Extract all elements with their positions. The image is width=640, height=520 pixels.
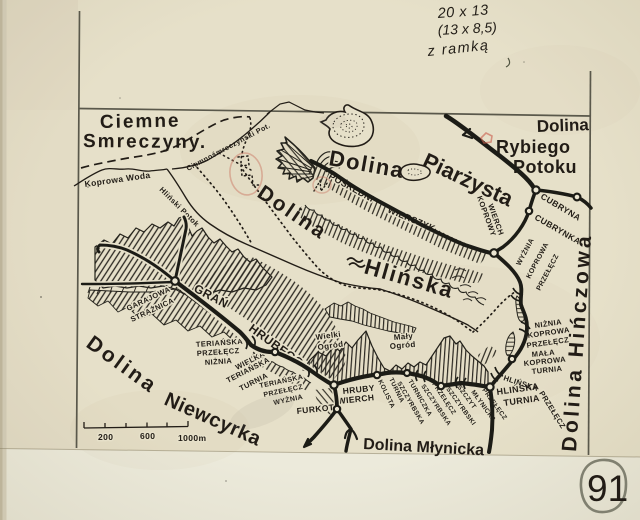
svg-text:Ciemne: Ciemne (100, 111, 181, 133)
svg-text:Dolina: Dolina (536, 115, 589, 136)
svg-text:600: 600 (140, 431, 155, 441)
svg-text:Smreczyny.: Smreczyny. (83, 131, 207, 153)
svg-text:NIŻNIA: NIŻNIA (205, 356, 233, 367)
svg-text:Rybiego: Rybiego (496, 137, 571, 157)
svg-text:1000m: 1000m (178, 433, 207, 443)
svg-text:91: 91 (587, 468, 628, 509)
svg-text:200: 200 (98, 432, 113, 442)
svg-text:(13 x 8,5): (13 x 8,5) (437, 19, 497, 38)
